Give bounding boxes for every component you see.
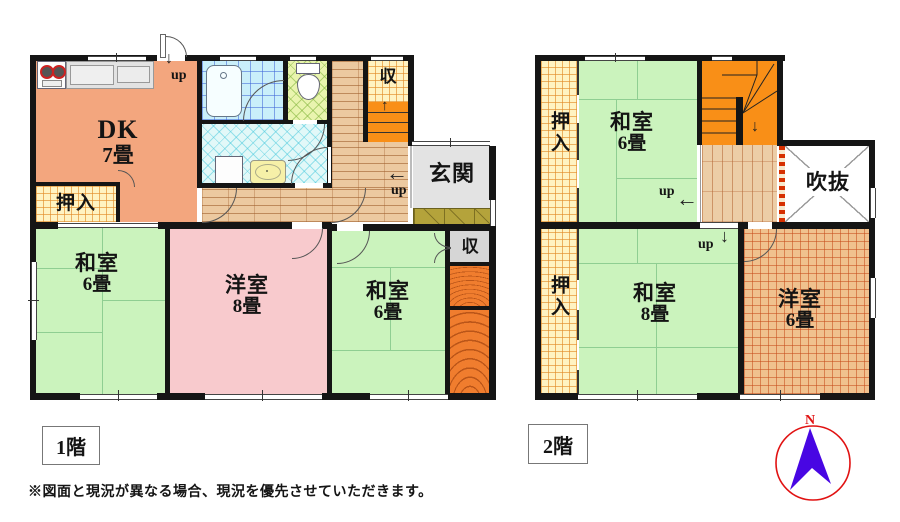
floorplan-canvas: DK 7畳 押入 和室 6畳 洋室 8畳 和室 6畳 玄関 収 収 ↓ up ↑… <box>0 0 900 522</box>
room-label-washitsu-6: 和室 6畳 <box>582 106 682 160</box>
room-size: 8畳 <box>641 305 670 326</box>
wall-segment <box>116 186 120 222</box>
window-tick <box>118 390 119 401</box>
door-gap <box>577 340 579 370</box>
tatami-line <box>637 61 638 99</box>
room-label-youshitsu: 洋室 8畳 <box>197 268 297 324</box>
wall-segment <box>779 140 875 146</box>
wall-segment <box>408 55 414 146</box>
window <box>290 56 316 61</box>
window <box>870 188 876 218</box>
window-band <box>36 394 490 400</box>
room-name: 和室 <box>610 111 654 134</box>
disclaimer: ※図面と現況が異なる場合、現況を優先させていただきます。 <box>28 481 433 501</box>
wall-segment <box>489 146 496 200</box>
door-gap <box>748 222 772 229</box>
wall-segment <box>535 55 785 61</box>
toilet-tank <box>296 63 320 74</box>
wall-segment <box>448 393 496 400</box>
room-label-washitsu-8: 和室 8畳 <box>605 276 705 332</box>
stair-tread <box>368 122 408 123</box>
window <box>371 56 403 61</box>
up-arrow-icon: ↑ <box>381 98 389 115</box>
grill <box>42 80 62 87</box>
wall-segment <box>158 222 292 229</box>
wall-segment <box>322 393 370 400</box>
room-name: 洋室 <box>778 288 822 311</box>
door-gap <box>337 224 363 231</box>
wall-segment <box>30 182 120 186</box>
entrance-door-gap <box>490 200 496 226</box>
window <box>88 56 146 61</box>
door-gap <box>328 147 331 183</box>
wall-segment <box>777 55 783 146</box>
room-name: 収 <box>462 238 479 256</box>
room-size: 6畳 <box>374 303 403 324</box>
window-tick <box>450 138 451 147</box>
wall-segment <box>445 262 490 266</box>
wall-segment <box>445 306 490 310</box>
left-arrow-icon: ← <box>676 186 698 212</box>
room-name: 和室 <box>75 252 119 275</box>
wall-segment <box>327 228 332 394</box>
door-gap <box>577 280 579 310</box>
window-tick <box>615 53 616 62</box>
room-label-oshiire: 押入 <box>36 190 116 218</box>
down-arrow-icon: ↓ <box>165 50 173 68</box>
room-name: 玄関 <box>429 162 475 186</box>
stair-tread <box>368 132 408 133</box>
wall-segment <box>30 393 80 400</box>
window <box>712 56 732 61</box>
room-name: 和室 <box>633 282 677 305</box>
floor2-label-box: 2階 <box>528 424 588 464</box>
tatami-line <box>332 350 445 351</box>
storage-label: 収 <box>368 66 408 88</box>
tatami-line <box>332 267 445 268</box>
room-name: 和室 <box>366 280 410 303</box>
window-tick <box>637 390 638 401</box>
washing-machine <box>215 156 243 184</box>
closet-wood <box>450 310 490 394</box>
room-name: 押入 <box>56 194 96 215</box>
drain <box>220 72 227 79</box>
wall-segment <box>697 393 740 400</box>
room-label-oshiire-bottom: 押入 <box>546 264 572 330</box>
up-text: up <box>171 68 187 84</box>
room-label-washitsu-right: 和室 6畳 <box>338 274 438 330</box>
hallway-2f <box>702 145 777 222</box>
room-size: 6畳 <box>618 134 647 155</box>
up-text: up <box>391 183 407 199</box>
room-name: 吹抜 <box>806 171 850 194</box>
down-arrow-icon: ↓ <box>720 226 729 247</box>
room-label-genkan: 玄関 <box>416 160 488 188</box>
tatami-line <box>579 99 697 100</box>
tatami-line <box>579 347 738 348</box>
up-text: up <box>659 184 675 200</box>
window-tick <box>116 53 117 62</box>
door-gap <box>577 95 579 123</box>
hallway <box>332 61 363 142</box>
tatami-line <box>616 178 697 179</box>
door-gap <box>198 190 201 220</box>
room-name: 収 <box>380 68 397 86</box>
room-name: 洋室 <box>225 274 269 297</box>
counter-top <box>117 66 150 83</box>
floor1-label-box: 1階 <box>42 426 100 465</box>
compass-north-label: N <box>805 413 815 428</box>
room-label-dk: DK 7畳 <box>72 112 164 170</box>
room-size: 6畳 <box>786 311 815 332</box>
burner-icon <box>52 65 66 79</box>
wall-segment <box>489 226 496 400</box>
partition-line <box>700 145 701 222</box>
room-size: 6畳 <box>83 275 112 296</box>
up-text: up <box>698 237 714 253</box>
tatami-line <box>637 229 638 263</box>
wall-segment <box>869 140 875 400</box>
room-name: DK <box>98 116 139 144</box>
room-size: 7畳 <box>102 144 134 167</box>
door-gap <box>577 160 579 188</box>
compass: N <box>770 398 870 518</box>
wall-segment <box>30 222 58 229</box>
north-arrow-icon <box>790 428 831 490</box>
basin-bowl <box>255 164 281 180</box>
window-tick <box>28 300 39 301</box>
window <box>870 278 876 318</box>
genkan-step-line <box>410 146 412 208</box>
window-tick <box>408 390 409 401</box>
genkan-window <box>412 141 490 146</box>
room-label-washitsu-left: 和室 6畳 <box>47 246 147 302</box>
wall-segment <box>697 55 702 145</box>
tatami-line <box>36 332 102 333</box>
wall-segment <box>736 97 743 145</box>
room-label-oshiire-top: 押入 <box>546 100 572 166</box>
tatami-line <box>656 347 657 394</box>
down-arrow-icon: ↓ <box>751 118 759 136</box>
basin-drain <box>266 170 268 172</box>
closet-wood <box>450 266 490 306</box>
partition-line <box>577 61 579 222</box>
wall-segment <box>535 393 578 400</box>
wall-segment <box>165 228 170 394</box>
room-size: 8畳 <box>233 297 262 318</box>
window <box>31 262 37 340</box>
door-gap <box>700 222 738 229</box>
window-tick <box>262 390 263 401</box>
storage-label: 収 <box>452 236 488 258</box>
window <box>220 56 256 61</box>
sink <box>70 65 114 85</box>
tatami-line <box>579 263 738 264</box>
room-label-youshitsu-6: 洋室 6畳 <box>750 282 850 338</box>
room-label-fukinuke: 吹抜 <box>790 168 866 196</box>
wall-segment <box>157 393 205 400</box>
